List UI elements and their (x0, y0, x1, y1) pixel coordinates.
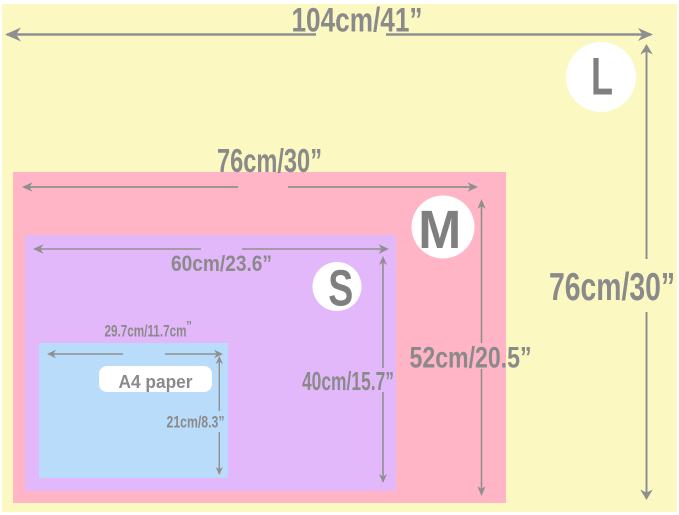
svg-text:40cm/15.7”: 40cm/15.7” (302, 366, 394, 396)
svg-text:104cm/41”: 104cm/41” (292, 2, 423, 40)
svg-text:60cm/23.6”: 60cm/23.6” (171, 251, 272, 276)
svg-text:S: S (328, 260, 353, 317)
svg-text:21cm/8.3”: 21cm/8.3” (167, 413, 225, 432)
svg-text:M: M (418, 201, 461, 260)
svg-text:76cm/30”: 76cm/30” (217, 143, 322, 180)
svg-text:”: ” (186, 318, 192, 333)
svg-text:76cm/30”: 76cm/30” (549, 266, 675, 309)
svg-text:L: L (591, 47, 613, 106)
svg-text:A4 paper: A4 paper (119, 371, 193, 392)
svg-text:52cm/20.5”: 52cm/20.5” (410, 342, 532, 375)
svg-text:29.7cm/11.7cm: 29.7cm/11.7cm (105, 322, 187, 341)
